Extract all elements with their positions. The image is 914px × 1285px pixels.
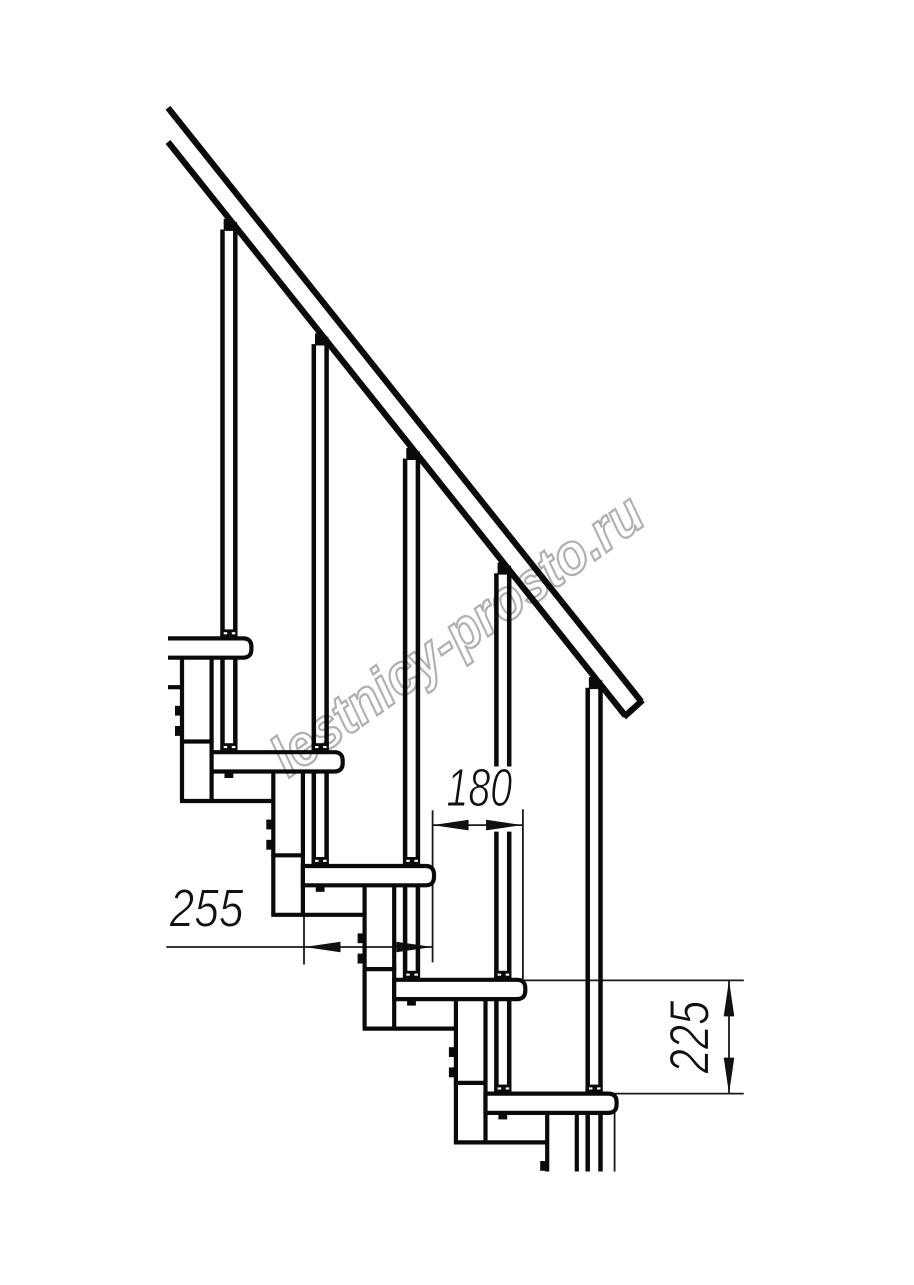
svg-text:225: 225 — [658, 1000, 720, 1075]
svg-text:255: 255 — [169, 878, 244, 938]
svg-text:180: 180 — [446, 758, 512, 819]
